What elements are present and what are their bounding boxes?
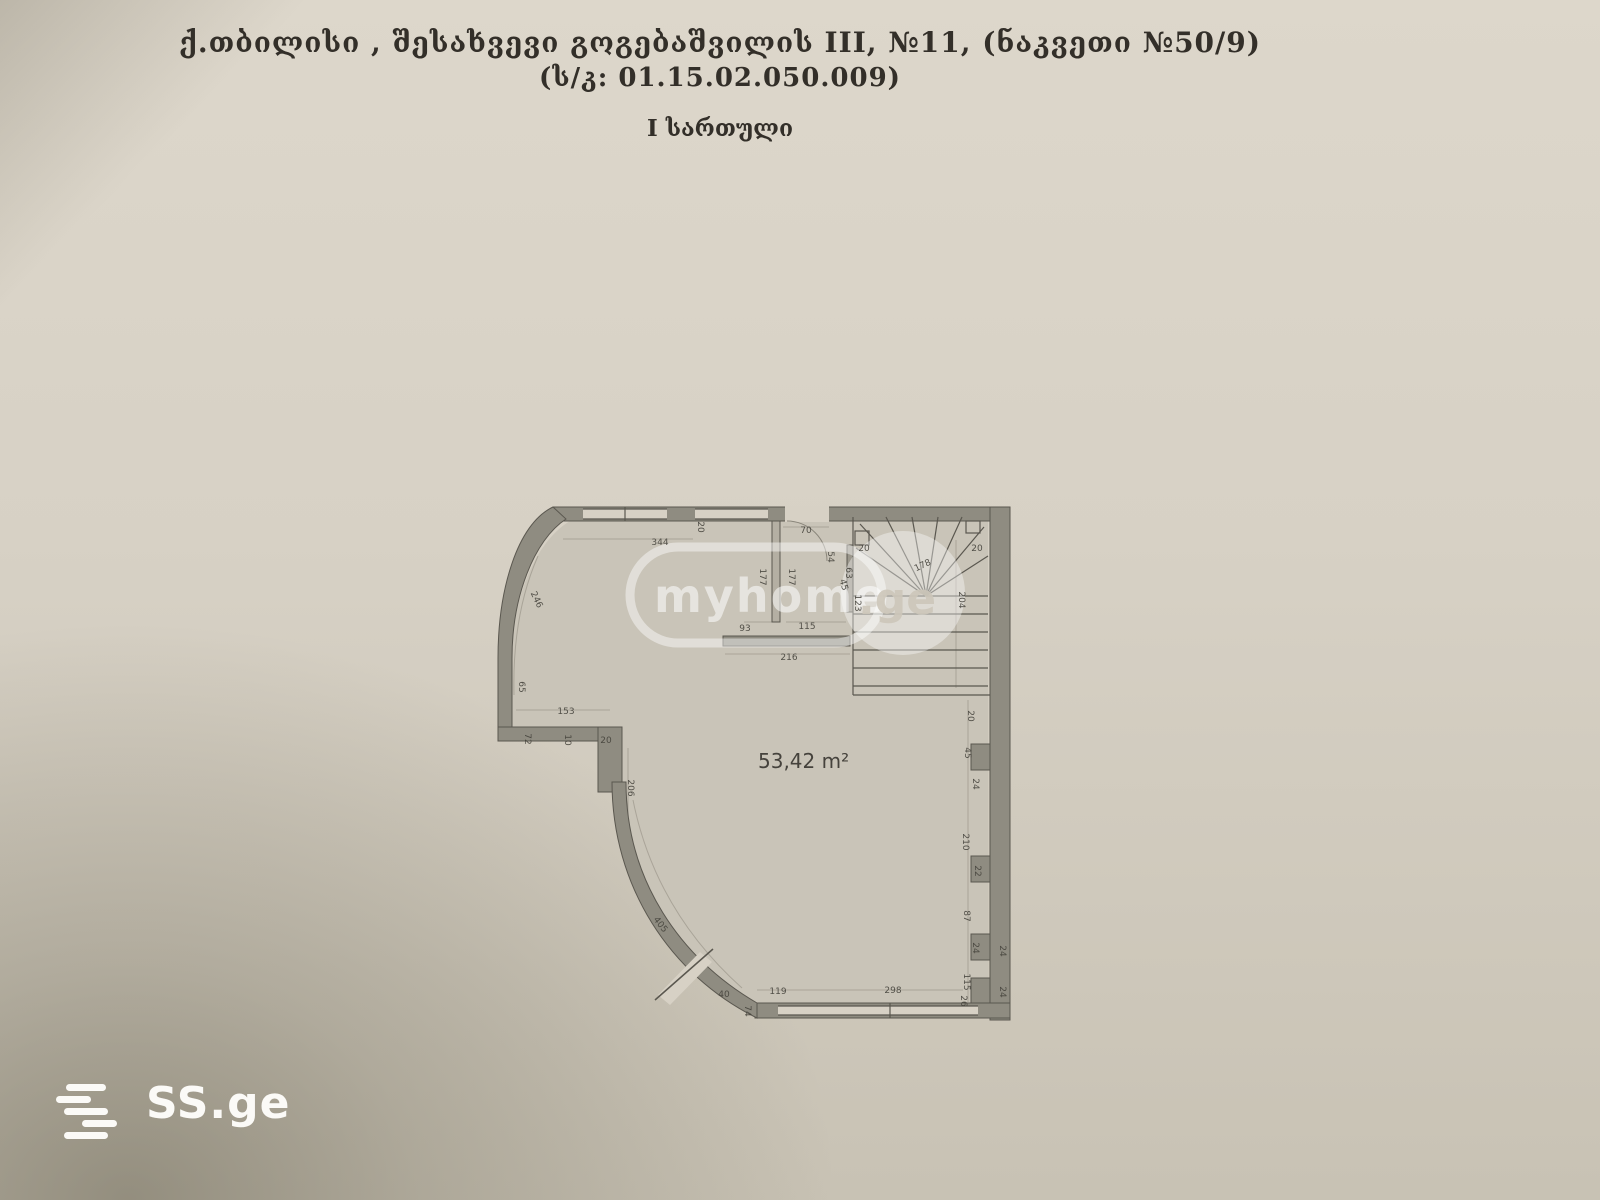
dimension-label: 119 — [769, 987, 786, 997]
dimension-label: 24 — [997, 986, 1007, 997]
dimension-label: 74 — [742, 1005, 752, 1016]
dimension-label: 24 — [970, 942, 980, 953]
dimension-label: 40 — [718, 990, 729, 1000]
dimension-label: 177 — [757, 568, 767, 585]
ssge-logo-text: SS.ge — [146, 1078, 290, 1129]
dimension-label: 20 — [965, 710, 975, 721]
dimension-labels: 3442070541771774520178206312320493115216… — [0, 0, 1600, 1200]
dimension-label: 65 — [516, 681, 526, 692]
dimension-label: 63 — [843, 567, 853, 578]
dimension-label: 54 — [825, 551, 835, 562]
scanned-floorplan-page: ქ.თბილისი , შესახვევი გოგებაშვილის III, … — [0, 0, 1600, 1200]
dimension-label: 298 — [884, 986, 901, 996]
dimension-label: 204 — [956, 591, 966, 608]
dimension-label: 344 — [651, 538, 668, 548]
dimension-label: 72 — [522, 733, 532, 744]
floor-plan: myhome .ge 53,42 m² 34420705417717745201… — [0, 0, 1600, 1200]
dimension-label: 206 — [625, 779, 635, 796]
dimension-label: 45 — [837, 578, 850, 592]
dimension-label: 24 — [970, 778, 980, 789]
dimension-label: 24 — [997, 945, 1007, 956]
dimension-label: 10 — [562, 734, 572, 745]
dimension-label: 210 — [960, 833, 970, 850]
dimension-label: 45 — [962, 747, 972, 758]
dimension-label: 115 — [961, 973, 971, 990]
dimension-label: 246 — [528, 590, 544, 610]
dimension-label: 87 — [961, 910, 971, 921]
dimension-label: 216 — [780, 653, 797, 663]
dimension-label: 123 — [852, 594, 862, 611]
dimension-label: 153 — [557, 707, 574, 717]
dimension-label: 70 — [800, 526, 811, 536]
ssge-logo: SS.ge — [56, 1076, 376, 1156]
dimension-label: 20 — [695, 521, 705, 532]
dimension-label: 115 — [798, 622, 815, 632]
dimension-label: 22 — [972, 865, 982, 876]
dimension-label: 405 — [651, 915, 669, 935]
dimension-label: 178 — [913, 558, 933, 574]
dimension-label: 20 — [858, 544, 869, 554]
dimension-label: 26 — [958, 995, 968, 1006]
dimension-label: 20 — [600, 736, 611, 746]
dimension-label: 177 — [786, 568, 796, 585]
ssge-bars-icon — [56, 1084, 116, 1144]
dimension-label: 93 — [739, 624, 750, 634]
dimension-label: 20 — [971, 544, 982, 554]
